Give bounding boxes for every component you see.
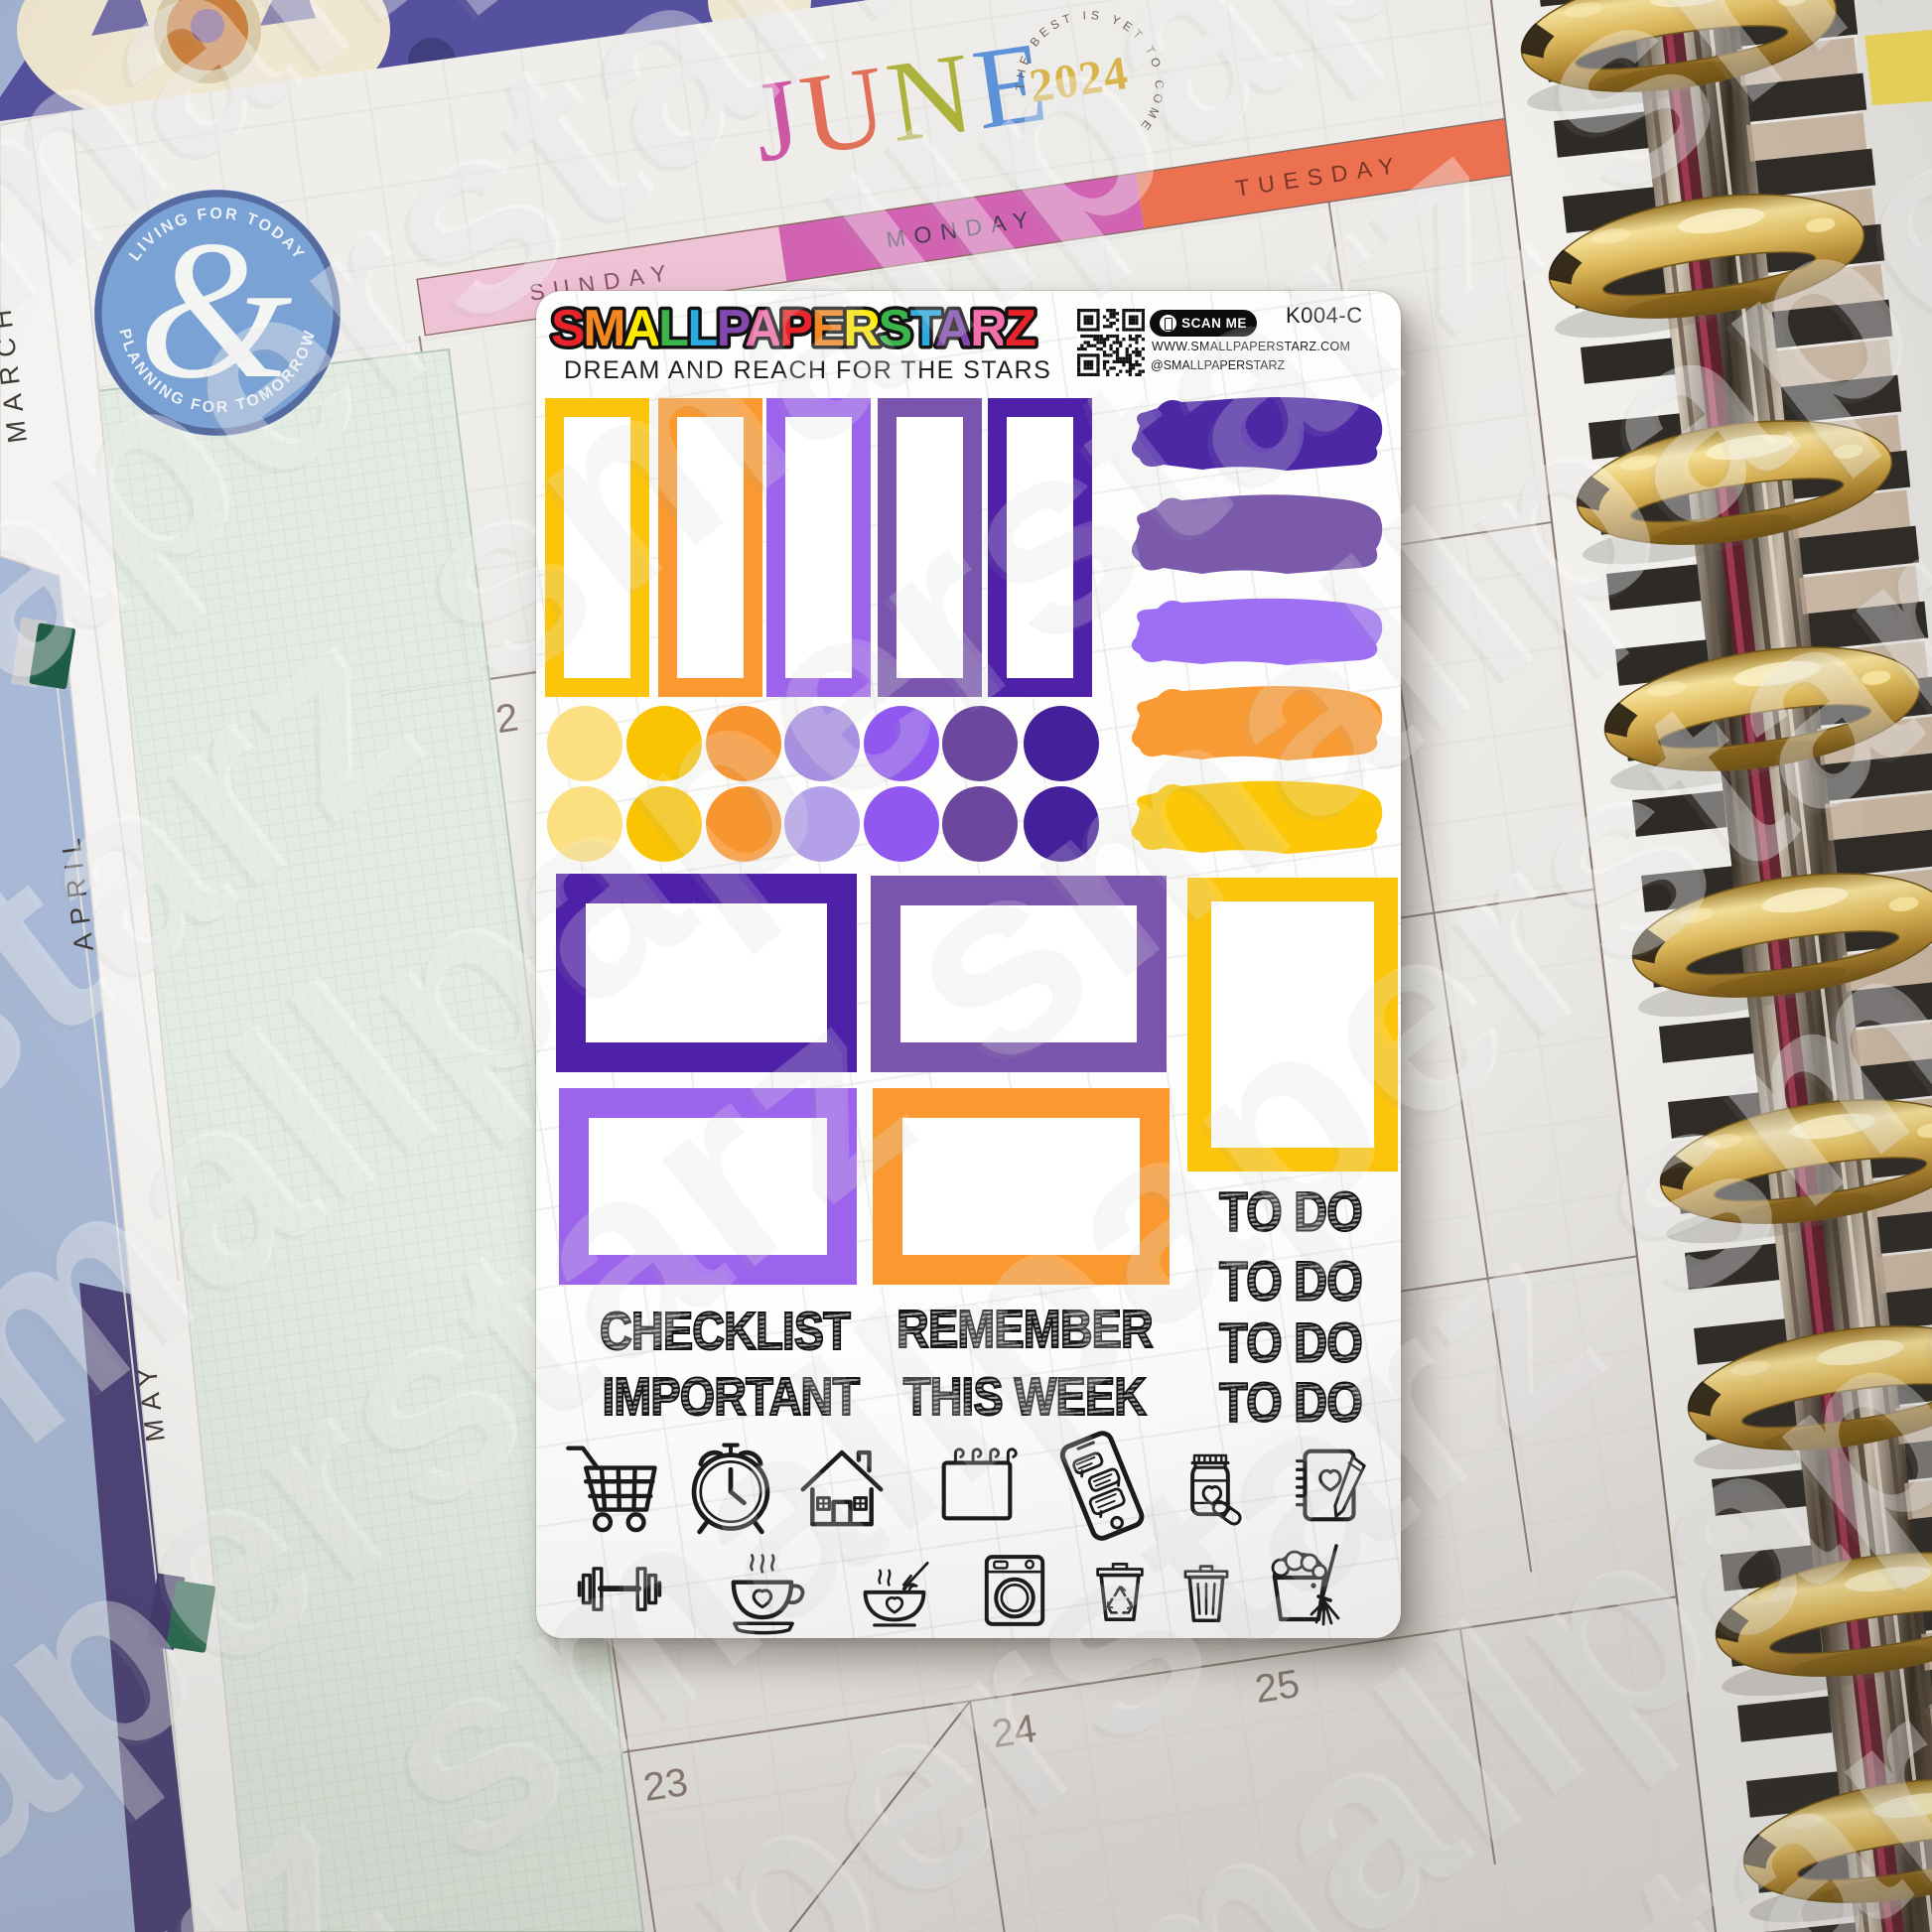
svg-text:24: 24	[989, 1707, 1038, 1756]
svg-text:23: 23	[640, 1760, 690, 1810]
svg-text:&: &	[138, 201, 293, 420]
svg-text:25: 25	[1252, 1662, 1302, 1712]
svg-text:SMALLPAPERSTARZ: SMALLPAPERSTARZ	[551, 300, 1035, 357]
